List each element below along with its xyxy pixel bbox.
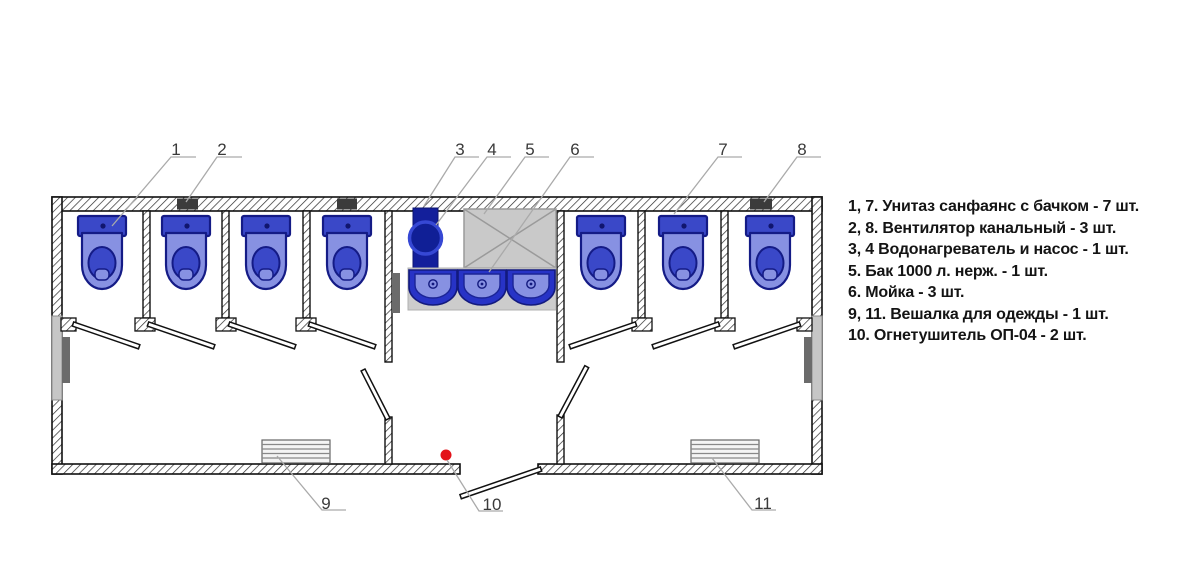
vestibule-door-leaf: [558, 366, 589, 418]
utility-wall-left: [385, 211, 392, 362]
toilet-icon: [242, 216, 290, 289]
callout-label-3: 3: [455, 140, 464, 160]
callout-label-1: 1: [171, 140, 180, 160]
sink-icon: [458, 270, 506, 305]
toilet-icon: [577, 216, 625, 289]
coat-hanger-icon: [262, 440, 330, 463]
legend-item-sinks: 6. Мойка - 3 шт.: [848, 282, 1139, 304]
legend: 1, 7. Унитаз санфаянс с бачком - 7 шт. 2…: [848, 196, 1139, 347]
callout-label-4: 4: [487, 140, 496, 160]
toilet-icon: [659, 216, 707, 289]
toilet-icon: [78, 216, 126, 289]
entrance-door-leaf: [460, 467, 542, 499]
partition-wall: [638, 211, 645, 318]
bottom-wall-right: [538, 464, 822, 474]
side-wall-opening-right: [812, 316, 822, 400]
callout-label-10: 10: [483, 495, 502, 515]
stall-door-leaf: [569, 322, 637, 349]
utility-wall-right: [557, 211, 564, 362]
legend-item-heater-pump: 3, 4 Водонагреватель и насос - 1 шт.: [848, 239, 1139, 261]
vestibule-door-leaf: [361, 369, 390, 420]
stall-door-leaf: [147, 322, 215, 349]
floor-plan-page: 1 2 3 4 5 6 7 8 9 10 11 1, 7. Унитаз сан…: [0, 0, 1200, 578]
vestibule-wall-right: [557, 415, 564, 464]
stall-door-leaf: [308, 322, 376, 349]
legend-item-tank: 5. Бак 1000 л. нерж. - 1 шт.: [848, 261, 1139, 283]
partition-wall: [303, 211, 310, 318]
pump-icon: [410, 222, 442, 254]
toilet-icon: [323, 216, 371, 289]
vent-icon: [750, 199, 772, 210]
stall-door-leaf: [228, 322, 296, 349]
callout-label-11: 11: [754, 494, 772, 514]
leader-line-8: [764, 157, 821, 202]
vestibule-wall-left: [385, 417, 392, 464]
radiator-panel: [62, 337, 70, 383]
vent-icon: [337, 199, 357, 210]
bottom-wall-left: [52, 464, 460, 474]
sink-icon: [409, 270, 457, 305]
leader-line-2: [186, 157, 242, 202]
toilet-icon: [746, 216, 794, 289]
partition-wall: [721, 211, 728, 318]
partition-wall: [143, 211, 150, 318]
partition-wall: [222, 211, 229, 318]
callout-label-9: 9: [321, 494, 330, 514]
toilet-icon: [162, 216, 210, 289]
callout-label-6: 6: [570, 140, 579, 160]
callout-label-7: 7: [718, 140, 727, 160]
callout-label-2: 2: [217, 140, 226, 160]
stall-door-leaf: [72, 322, 140, 349]
legend-item-extinguisher: 10. Огнетушитель ОП-04 - 2 шт.: [848, 325, 1139, 347]
callout-label-5: 5: [525, 140, 534, 160]
sink-icon: [507, 270, 555, 305]
stall-door-leaf: [733, 322, 801, 349]
coat-hanger-icon: [691, 440, 759, 463]
callout-label-8: 8: [797, 140, 806, 160]
radiator-panel: [392, 273, 400, 313]
legend-item-hangers: 9, 11. Вешалка для одежды - 1 шт.: [848, 304, 1139, 326]
fire-extinguisher-icon: [441, 450, 452, 461]
stall-door-leaf: [652, 322, 720, 349]
radiator-panel: [804, 337, 812, 383]
water-tank-icon: [464, 209, 556, 268]
legend-item-toilets: 1, 7. Унитаз санфаянс с бачком - 7 шт.: [848, 196, 1139, 218]
legend-item-vents: 2, 8. Вентилятор канальный - 3 шт.: [848, 218, 1139, 240]
